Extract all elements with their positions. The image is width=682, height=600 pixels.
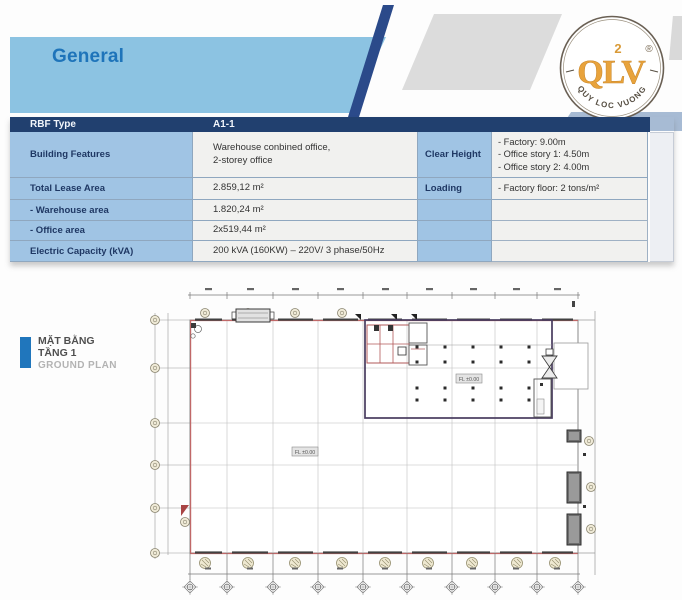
dock-bubble [587,525,596,534]
empty-cell [418,221,492,241]
row-value: Warehouse conbined office, 2-storey offi… [193,132,418,178]
table-header-row: RBF Type A1-1 [10,117,650,132]
grid-bubble [151,461,160,470]
table-side-strip [650,132,674,262]
grid-bubble [151,316,160,325]
canopy-bubble [338,309,347,318]
qlv-logo: QLV 2 ® QUY LOC VUONG [556,12,668,124]
row-label: Electric Capacity (kVA) [10,241,193,262]
rbf-type-label: RBF Type [30,117,76,132]
plan-top-dimension [188,292,580,299]
svg-text:FL ±0.00: FL ±0.00 [295,450,315,456]
row-label: - Office area [10,221,193,241]
canopy-bubble [201,309,210,318]
ramp-marker [181,505,189,516]
row-label: Total Lease Area [10,178,193,200]
grid-bubble [181,518,190,527]
level-label-box: FL ±0.00 [292,447,318,456]
row-value: 2x519,44 m² [193,221,418,241]
empty-cell [492,241,648,262]
roof-equipment [232,309,274,322]
edge-parallelogram [669,16,682,60]
dock-bubble [585,437,594,446]
bottom-grid-markers [182,579,586,595]
north-tick [572,301,575,307]
row-value: - Factory floor: 2 tons/m² [492,178,648,200]
logo-registered-icon: ® [645,44,653,55]
empty-cell [492,200,648,221]
plan-caption: MẶT BẰNG TẦNG 1 GROUND PLAN [38,335,117,372]
empty-cell [418,200,492,221]
row-value: - Factory: 9.00m - Office story 1: 4.50m… [492,132,648,178]
empty-cell [418,241,492,262]
grid-bubble [151,549,160,558]
page-title: General [52,46,124,68]
logo-sup2: 2 [614,41,621,56]
dock-bubble [587,483,596,492]
logo-main-text: QLV [577,54,646,91]
plan-top-dim-text-blobs [205,288,561,290]
row-value: 200 kVA (160KW) – 220V/ 3 phase/50Hz [193,241,418,262]
plan-caption-line3: GROUND PLAN [38,359,117,372]
plan-caption-line2: TẦNG 1 [38,347,117,359]
grid-bubble [151,364,160,373]
building-outline [190,320,578,553]
row-label: Building Features [10,132,193,178]
grid-bubble [151,419,160,428]
grid-bubble [151,504,160,513]
row-label: Loading [418,178,492,200]
level-label-box: FL ±0.00 [456,374,482,383]
row-label: - Warehouse area [10,200,193,221]
row-value: 1.820,24 m² [193,200,418,221]
row-value: 2.859,12 m² [193,178,418,200]
plan-caption-line1: MẶT BẰNG [38,335,117,347]
landscape-bushes [200,558,561,569]
rbf-type-value: A1-1 [213,117,235,132]
svg-text:FL ±0.00: FL ±0.00 [459,377,479,383]
gray-parallelogram [402,14,562,90]
brochure-page: General QLV 2 ® QUY LOC VUONG RBF Type A… [0,0,682,600]
row-label: Clear Height [418,132,492,178]
canopy-bubble [291,309,300,318]
ground-plan-drawing: FL ±0.00 FL ±0.00 [148,283,650,598]
empty-cell [492,221,648,241]
plan-caption-bar [20,337,31,368]
spec-table: RBF Type A1-1 Building Features Warehous… [10,117,674,262]
plan-bottom-dim-text-blobs [205,568,560,570]
